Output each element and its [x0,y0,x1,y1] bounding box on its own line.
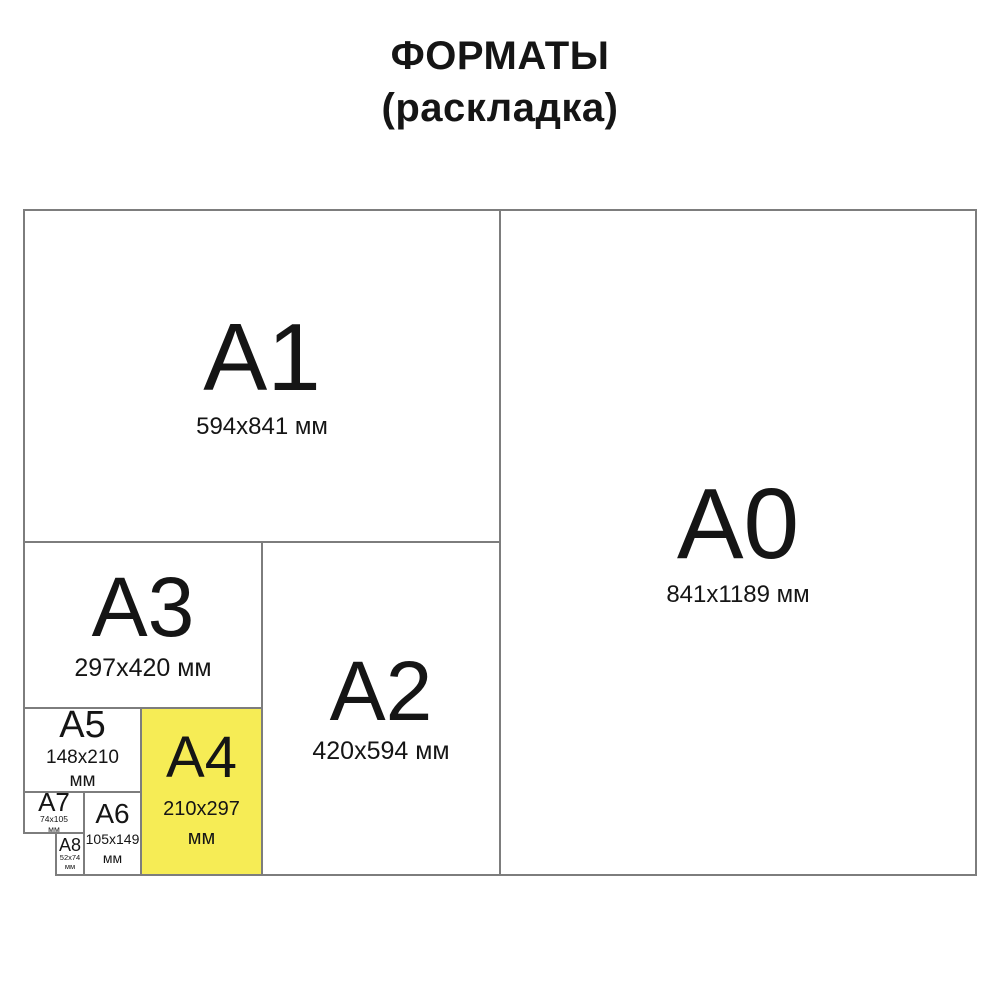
format-cell-a8: A8 52x74 мм [57,834,83,874]
format-dims-a3: 297x420 мм [74,654,211,683]
format-dims-a4-line2: мм [163,824,240,853]
format-cell-a4-highlighted: A4 210x297 мм [142,709,261,874]
format-letter-a2: A2 [330,651,433,732]
format-dims-a8-line2: мм [60,863,80,872]
outer-bottom-border [55,874,977,876]
diagram-title-line1: ФОРМАТЫ [0,30,1000,82]
format-cell-a2: A2 420x594 мм [263,543,499,874]
diagram-title-line2: (раскладка) [0,82,1000,134]
format-dims-a6-line1: 105x149 [86,830,140,849]
format-letter-a8: A8 [59,837,81,854]
format-letter-a5: A5 [59,707,105,744]
paper-formats-diagram: ФОРМАТЫ (раскладка) A1 594x841 мм A0 841… [0,0,1000,1000]
format-letter-a4: A4 [166,730,237,786]
a3-bottom-divider [23,707,263,709]
a8-left-border [55,832,57,876]
outer-right-border [975,209,977,876]
format-dims-a0: 841x1189 мм [666,581,809,609]
format-letter-a0: A0 [677,476,799,573]
diagram-title: ФОРМАТЫ (раскладка) [0,30,1000,134]
format-dims-a1: 594x841 мм [196,413,328,441]
format-dims-a6: 105x149 мм [86,830,140,868]
format-letter-a6: A6 [95,800,129,827]
format-cell-a3: A3 297x420 мм [25,543,261,707]
format-cell-a5: A5 148x210 мм [25,709,140,791]
format-dims-a4: 210x297 мм [163,795,240,853]
a7-bottom-divider [23,832,85,834]
format-cell-a6: A6 105x149 мм [85,793,140,874]
format-letter-a3: A3 [92,567,195,648]
format-cell-a7: A7 74x105 мм [25,793,83,832]
format-dims-a2: 420x594 мм [312,737,449,766]
outer-left-border [23,209,25,834]
format-dims-a5: 148x210 мм [46,746,119,794]
format-cell-a0: A0 841x1189 мм [501,211,975,874]
format-dims-a8: 52x74 мм [60,854,80,871]
format-dims-a5-line1: 148x210 [46,746,119,770]
format-dims-a6-line2: мм [86,849,140,868]
format-cell-a1: A1 594x841 мм [25,211,499,541]
format-letter-a1: A1 [203,311,320,404]
format-dims-a4-line1: 210x297 [163,795,240,824]
format-letter-a7: A7 [38,790,70,815]
